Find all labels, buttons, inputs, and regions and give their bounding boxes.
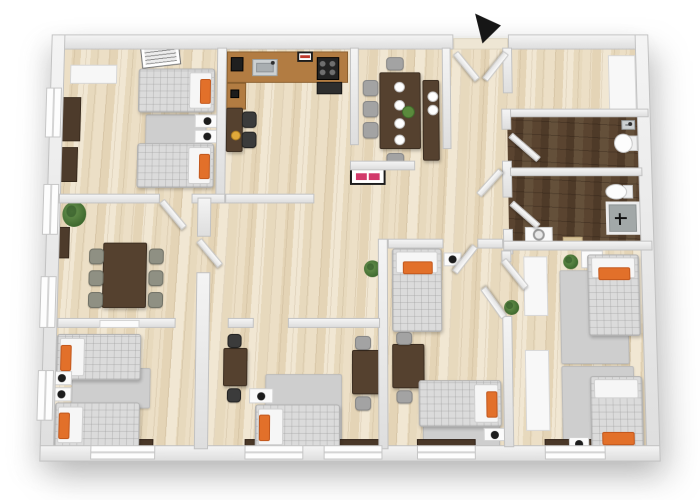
lamp [203, 133, 211, 141]
wall-c2-north [388, 239, 444, 249]
accent [602, 432, 635, 445]
wall-hall-c1 [288, 318, 380, 328]
wall-living-east [194, 272, 211, 449]
bar2 [305, 55, 309, 59]
plate [428, 105, 439, 116]
coffee-machine [231, 57, 244, 71]
kitchen-table [226, 108, 243, 152]
window [545, 445, 606, 459]
lamp [449, 255, 457, 263]
shower [606, 201, 641, 234]
hall-wardrobe [608, 55, 637, 112]
desk-chair [227, 334, 241, 348]
leafb [66, 205, 77, 216]
dining-chair [88, 270, 103, 286]
accent [402, 262, 433, 275]
dining-chair [386, 57, 404, 70]
toilet [614, 134, 638, 153]
fruit [231, 131, 241, 141]
desk-chair [355, 336, 371, 350]
floor-plan-image [0, 0, 700, 500]
plate [394, 82, 405, 92]
lamp [203, 117, 211, 125]
potted-plant [62, 201, 86, 226]
potted-plant [504, 300, 519, 315]
bar1 [301, 55, 305, 59]
wline-h [325, 451, 382, 453]
wall-bathroom-south [503, 241, 652, 251]
faucet [271, 61, 275, 65]
leafb [565, 257, 572, 264]
pillow [594, 379, 639, 398]
window [90, 445, 155, 459]
washing-machine [525, 227, 553, 242]
window [324, 445, 383, 459]
kitchen-wall-art [297, 51, 313, 61]
wall-dining-south [350, 161, 415, 171]
bed-5 [255, 404, 340, 449]
bed-7 [419, 380, 502, 427]
wall-living-east [197, 198, 211, 237]
wline-h [546, 451, 605, 453]
dining-chair [148, 270, 163, 286]
tapbar [618, 213, 620, 225]
wline-v [49, 185, 52, 234]
burner [329, 70, 335, 76]
wline-h [418, 451, 475, 453]
bar-counter [422, 80, 439, 161]
bowl [605, 184, 627, 200]
lamp [257, 392, 265, 400]
greens [402, 106, 415, 118]
wline-v [44, 371, 47, 420]
wall-corridor [501, 109, 511, 130]
wall-bedroom5-west [502, 316, 514, 447]
bed-6 [392, 249, 442, 332]
window [36, 370, 54, 421]
accent [200, 79, 211, 104]
nightstand [249, 388, 273, 403]
dining-table [379, 72, 421, 149]
faucet [628, 122, 632, 126]
wall-c2-north [477, 239, 503, 249]
wc-sink [621, 120, 635, 130]
plate [395, 135, 406, 146]
wall-corridor [502, 161, 512, 198]
wall-kitchen-dining [350, 48, 359, 146]
window [42, 184, 59, 235]
wline-v [52, 89, 55, 137]
nightstand [484, 428, 506, 441]
porthole [533, 228, 545, 240]
dining-chair [149, 249, 164, 265]
entrance-threshold [453, 38, 508, 49]
desk-chair [355, 396, 371, 410]
accent [58, 413, 70, 439]
kettle [230, 90, 239, 99]
apartment-floor-plan [0, 10, 700, 500]
exterior-wall-top-west [53, 34, 453, 49]
desk-chair [396, 332, 412, 345]
dining-chair [88, 292, 103, 308]
bed-2 [136, 143, 214, 188]
wall-dining-east [442, 48, 452, 149]
wall-heater [350, 168, 386, 185]
bed-9 [590, 376, 644, 449]
tapbar [614, 217, 626, 219]
wline-v [46, 277, 49, 327]
window [244, 445, 303, 459]
oven [317, 82, 342, 94]
window [39, 276, 56, 328]
wall-hall-c1 [228, 318, 254, 328]
lamp [57, 390, 65, 398]
accent [598, 267, 630, 280]
lamp [58, 374, 66, 382]
accent [60, 345, 72, 372]
bar1 [356, 173, 367, 180]
desk-chair [396, 390, 412, 403]
wline-h [91, 451, 154, 453]
window [45, 88, 62, 138]
bed-4 [54, 402, 140, 447]
dining-chair [89, 249, 104, 265]
accent [199, 154, 210, 180]
bed-1 [138, 69, 215, 113]
plate [428, 91, 439, 102]
bed-8 [587, 254, 641, 335]
accent [486, 391, 497, 418]
wardrobe-panel [60, 97, 81, 141]
lamp [491, 430, 499, 438]
burner [329, 61, 335, 67]
wall-wc-bathroom [510, 167, 643, 176]
burner [320, 70, 326, 76]
cooktop [317, 57, 340, 80]
bar2 [368, 173, 379, 180]
exterior-wall-top-east [508, 34, 647, 49]
closet [70, 65, 117, 84]
wall-bedroom1-kitchen [215, 48, 227, 196]
plate [395, 118, 406, 129]
wall-hatch [99, 320, 139, 328]
wall-kitchen-south [225, 194, 314, 204]
potted-plant [563, 254, 578, 269]
leafb [506, 302, 513, 309]
kitchen-chair [242, 112, 257, 128]
wline-h [245, 451, 302, 453]
dining-chair [363, 80, 379, 96]
accent [259, 415, 270, 441]
desk [223, 348, 248, 386]
desk-chair [227, 388, 241, 402]
burner [320, 61, 326, 67]
window [417, 445, 476, 459]
wardrobe [525, 350, 551, 431]
toilet [605, 184, 633, 200]
dining-chair [148, 292, 163, 308]
living-dining-table [102, 243, 147, 308]
kitchen-chair [242, 132, 257, 148]
wall-hall-wc [507, 109, 649, 118]
desk [352, 350, 380, 394]
dining-chair [363, 122, 379, 138]
wall-bedroom1-south [59, 194, 160, 204]
kitchen-sink [252, 59, 278, 76]
wall-center-divider [378, 239, 389, 450]
dining-chair [363, 101, 379, 117]
